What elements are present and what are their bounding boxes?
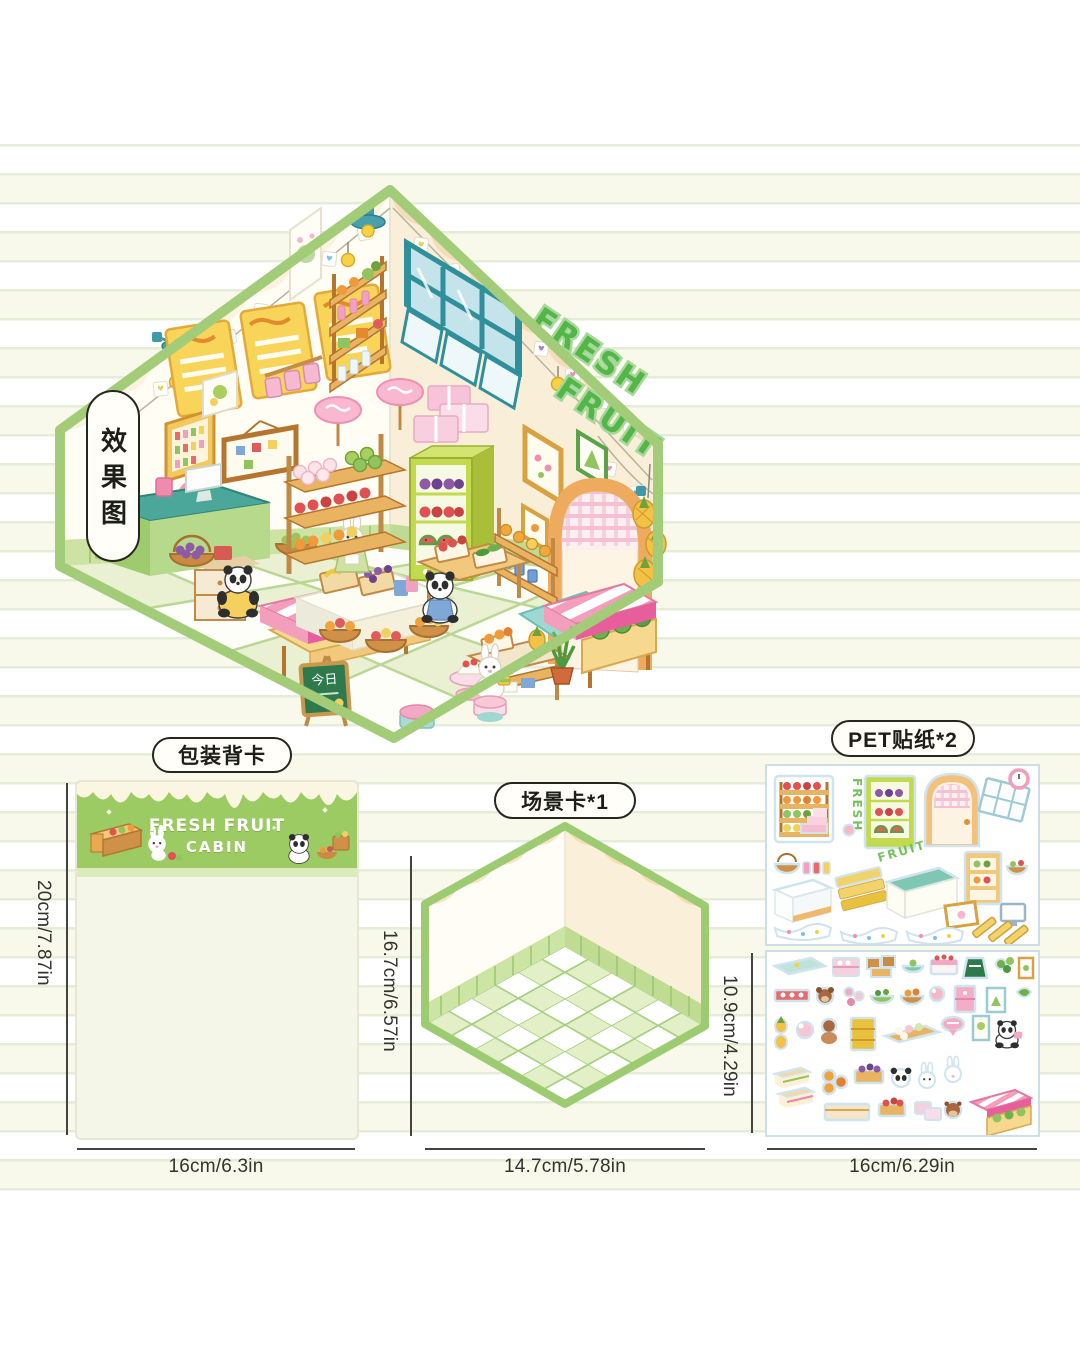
sticker-panda-head [891,1068,912,1087]
back-card-width-value: 16cm/6.3in [77,1156,355,1178]
sticker-teal-dish [903,960,923,973]
sticker-veg-bowl [871,989,893,1003]
scene-card-height-line [410,856,412,1136]
scene-card-width-value: 14.7cm/5.78in [425,1156,705,1178]
back-card: FRESH FRUIT CABIN [75,780,359,1140]
sticker-yellow-cabinet [851,1018,875,1050]
sticker-panda-sitting [995,1020,1022,1048]
sticker-pink-cabinet [955,986,975,1012]
sticker-greens [996,957,1014,973]
sticker-candies [845,988,864,1007]
sticker-bear-small [821,1019,837,1044]
sticker-white-frame [987,988,1005,1012]
sticker-apple-crate [879,1098,905,1117]
sticker-long-counter [825,1104,869,1120]
sticker-gold-frame [1019,958,1033,978]
sticker-sandwiches [775,1068,813,1108]
sticker-strawberry-cake [931,955,957,975]
sticker-speech-bubble [942,1017,964,1036]
sticker-jars [803,862,830,874]
back-card-height-line [66,783,68,1135]
sticker-sheet-2 [765,950,1040,1137]
back-card-height-value: 20cm/7.87in [32,880,54,986]
sticker-poster-green [973,1016,989,1040]
sticker-grape-crate [855,1064,883,1084]
sticker-basket [775,854,799,873]
sticker-sheet2-height-value: 10.9cm/4.29in [718,975,740,1097]
back-card-title-line2: CABIN [77,838,357,856]
sticker-sheet-1: FRESH [765,764,1040,946]
sticker-berry-tray [775,990,809,1001]
sticker-width-value: 16cm/6.29in [767,1156,1037,1178]
back-card-label: 包装背卡 [152,737,292,773]
sticker-orange-basket [901,989,923,1005]
product-infographic: FRESH FRUIT [0,0,1080,1350]
scene-card-width-line [425,1148,705,1150]
sticker-clock [1010,770,1028,788]
sticker-bear-head [816,987,834,1004]
sticker-width-line [767,1148,1037,1150]
sticker-dumpling-tray [885,1023,939,1042]
scene-card [415,818,715,1143]
sticker-leaf [1017,988,1031,997]
sticker-frame [945,902,978,928]
sticker-word-fresh: FRESH [850,778,864,832]
sticker-pink-ball [930,987,944,1001]
back-card-width-line [77,1148,355,1150]
sticker-mini-shelf [833,958,859,976]
svg-text:今日: 今日 [311,671,338,689]
sticker-green-cabinet [865,776,915,848]
scene-card-label: 场景卡*1 [494,782,636,819]
pink-stool [474,696,506,722]
sticker-freezer [775,880,831,922]
sticker-door [925,774,979,846]
back-card-title-line1: FRESH FRUIT [77,816,357,836]
sticker-a-board [963,958,987,978]
sticker-sheet2-height-line [751,953,753,1133]
sticker-mat [775,958,825,974]
sticker-pink-puff [797,1022,813,1038]
sticker-bunny-ears [945,1056,961,1082]
sticker-bunny-white [919,1062,935,1088]
sticker-pineapple-string [775,1016,787,1049]
sticker-pink-boxes [915,1102,941,1120]
sticker-basket-2 [1007,860,1027,874]
sticker-capybara [944,1101,961,1118]
scene-card-height-value: 16.7cm/6.57in [378,930,400,1052]
sticker-crates [867,956,895,977]
pet-stickers-label: PET贴纸*2 [831,720,975,757]
sticker-wood-shelf [965,852,1001,904]
sticker-donuts [823,1070,847,1094]
sticker-market-stand [971,1090,1031,1135]
sticker-yellow-awning [835,867,888,911]
render-preview-label: 效果图 [86,390,140,562]
